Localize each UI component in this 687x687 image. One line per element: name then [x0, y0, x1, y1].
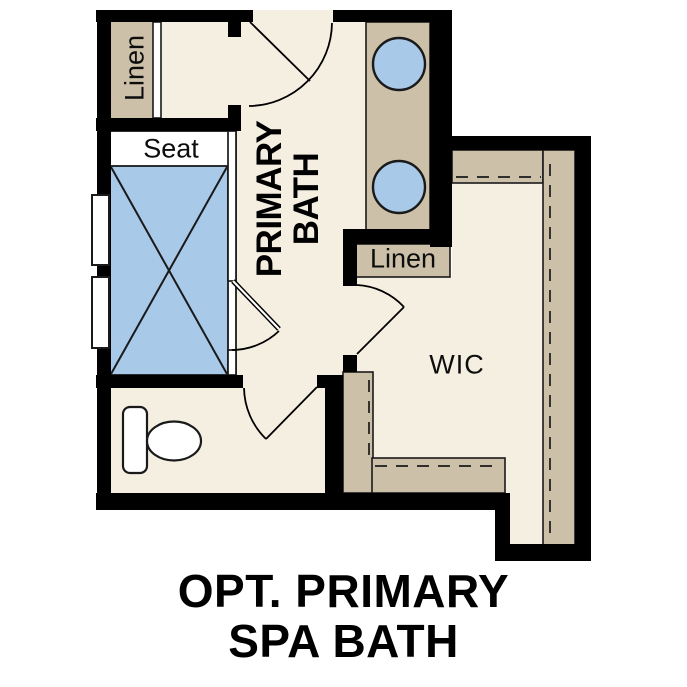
wall-toilet-door-jamb [317, 375, 343, 388]
wall-wic-top [430, 136, 591, 150]
wall-shower-bottom [96, 375, 243, 388]
shower-glass-panel-lower [228, 350, 236, 375]
wall-closet-jamb-bottom [228, 105, 241, 118]
wall-right [575, 136, 591, 561]
wic-shelf-right [543, 150, 575, 545]
wall-top-left [96, 10, 253, 22]
linen-shelf-front-edge [153, 22, 161, 118]
wall-wic-door-jamb [343, 355, 357, 372]
toilet-bowl [147, 422, 201, 461]
floor-wic-bottom [507, 495, 543, 545]
wall-linen-stub [343, 229, 357, 286]
label-primary-bath-line2: BATH [288, 121, 325, 278]
sink-bowl-bottom [373, 161, 425, 213]
floor-wic-main [452, 150, 543, 495]
label-linen-cabinet: Linen [370, 246, 436, 273]
label-primary-bath: PRIMARY BATH [251, 121, 325, 278]
label-shower-seat: Seat [143, 136, 199, 163]
label-wic: WIC [429, 352, 484, 379]
floor-entry-doorway [253, 10, 333, 22]
plan-title-line2: SPA BATH [0, 616, 687, 666]
wall-vanity-right [430, 10, 452, 247]
plan-title: OPT. PRIMARY SPA BATH [0, 566, 687, 666]
wall-toilet-right [325, 375, 343, 493]
label-linen-closet: Linen [122, 35, 149, 101]
wic-bench-bottom [372, 458, 505, 493]
toilet-tank [123, 407, 147, 473]
wic-shelf-top [452, 150, 543, 183]
floor-toilet-doorway [243, 375, 317, 388]
shower-glass-panel-upper [228, 131, 236, 281]
wall-below-vanity [343, 229, 452, 244]
label-primary-bath-line1: PRIMARY [251, 121, 288, 278]
shower [110, 131, 236, 375]
wall-closet-bottom [96, 118, 241, 131]
wall-closet-jamb-top [228, 22, 241, 37]
floor-wic-doorway [343, 286, 357, 355]
plan-title-line1: OPT. PRIMARY [0, 566, 687, 616]
window-lower [92, 277, 109, 348]
wall-bottom [96, 493, 510, 510]
sink-bowl-top [373, 38, 425, 90]
wall-wic-step [495, 497, 510, 561]
floor-plan-page: Linen Seat PRIMARY BATH Linen WIC OPT. P… [0, 0, 687, 687]
window-upper [92, 195, 109, 265]
